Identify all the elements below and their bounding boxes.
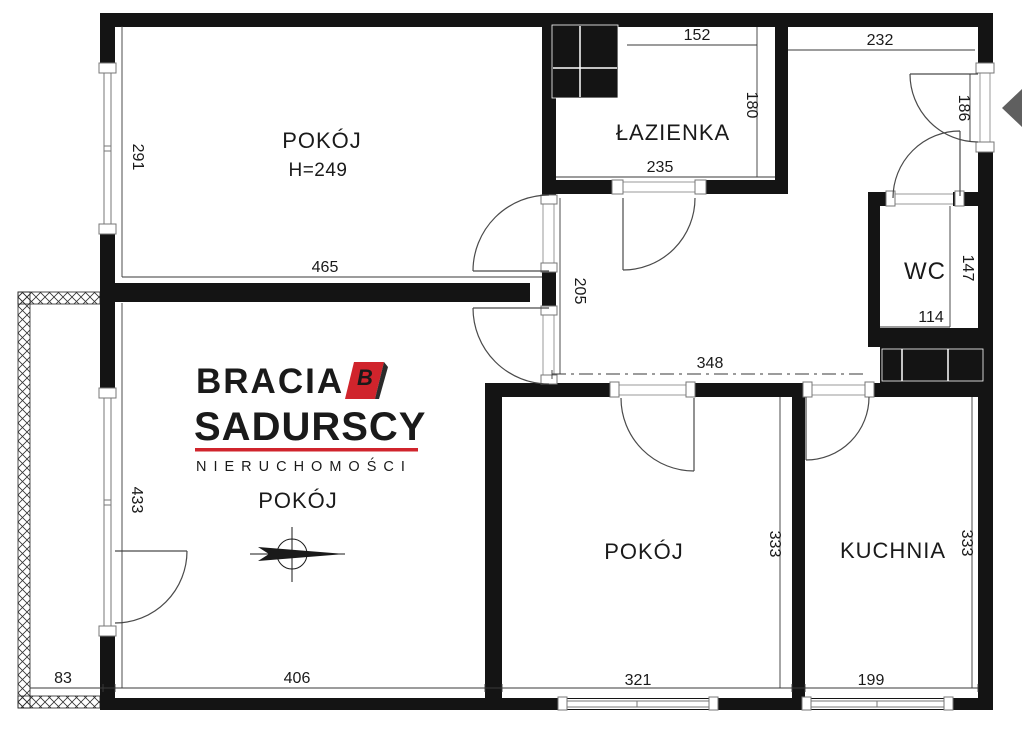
logo-tagline: NIERUCHOMOŚCI bbox=[196, 457, 412, 475]
balcony-door-window bbox=[100, 397, 115, 627]
door-lazienka bbox=[623, 198, 695, 270]
room-label-pokoj2: POKÓJ bbox=[258, 488, 338, 513]
room-label-pokoj1: POKÓJ bbox=[282, 128, 362, 153]
window-pokoj3 bbox=[566, 699, 710, 709]
dim-232: 232 bbox=[867, 32, 894, 49]
logo-brand-top: BRACIA bbox=[196, 362, 344, 401]
door-wc bbox=[893, 131, 960, 198]
dim-180: 180 bbox=[743, 92, 760, 119]
wc-shaft bbox=[880, 347, 985, 383]
door-pokoj2 bbox=[473, 308, 549, 384]
room-label-pokoj3: POKÓJ bbox=[604, 539, 684, 564]
dim-291: 291 bbox=[129, 144, 146, 171]
dim-199: 199 bbox=[858, 672, 885, 689]
dim-83: 83 bbox=[54, 670, 72, 687]
entrance-arrow-icon bbox=[1002, 89, 1022, 127]
dim-235: 235 bbox=[647, 159, 674, 176]
dim-321: 321 bbox=[625, 672, 652, 689]
room-label-lazienka: ŁAZIENKA bbox=[616, 120, 730, 145]
door-balcony bbox=[115, 551, 187, 623]
door-pokoj3 bbox=[621, 398, 694, 471]
ceiling-point-symbol bbox=[250, 527, 345, 582]
logo-mark-letter: B bbox=[357, 365, 373, 390]
dim-465: 465 bbox=[312, 259, 339, 276]
logo-mark: B bbox=[345, 362, 388, 399]
dim-114: 114 bbox=[918, 309, 944, 326]
window-kuchnia bbox=[810, 699, 945, 709]
agency-logo: BRACIA B SADURSCY NIERUCHOMOŚCI bbox=[194, 362, 426, 475]
dim-147: 147 bbox=[959, 255, 976, 282]
dimension-labels: 291 465 152 180 235 232 186 205 348 147 … bbox=[54, 27, 976, 689]
window-pokoj1 bbox=[100, 72, 115, 225]
door-kuchnia bbox=[806, 397, 869, 460]
balcony-hatch bbox=[18, 292, 100, 708]
door-pokoj1 bbox=[473, 195, 549, 271]
logo-brand-bottom: SADURSCY bbox=[194, 405, 426, 449]
room-label-kuchnia: KUCHNIA bbox=[840, 538, 946, 563]
dim-333-left: 333 bbox=[766, 531, 783, 558]
dim-348: 348 bbox=[697, 355, 724, 372]
room-height-note: H=249 bbox=[288, 160, 347, 181]
dim-205: 205 bbox=[571, 278, 588, 305]
logo-divider bbox=[195, 448, 418, 452]
dimension-lines bbox=[30, 26, 978, 692]
dim-152: 152 bbox=[684, 27, 711, 44]
dim-433: 433 bbox=[128, 487, 145, 514]
dim-186: 186 bbox=[955, 95, 972, 122]
floor-plan-page: 291 465 152 180 235 232 186 205 348 147 … bbox=[0, 0, 1024, 734]
room-label-wc: WC bbox=[904, 258, 946, 285]
floor-plan-drawing: 291 465 152 180 235 232 186 205 348 147 … bbox=[0, 0, 1024, 734]
dim-406: 406 bbox=[284, 670, 311, 687]
dim-333-right: 333 bbox=[958, 530, 975, 557]
bathroom-shaft bbox=[552, 25, 618, 98]
